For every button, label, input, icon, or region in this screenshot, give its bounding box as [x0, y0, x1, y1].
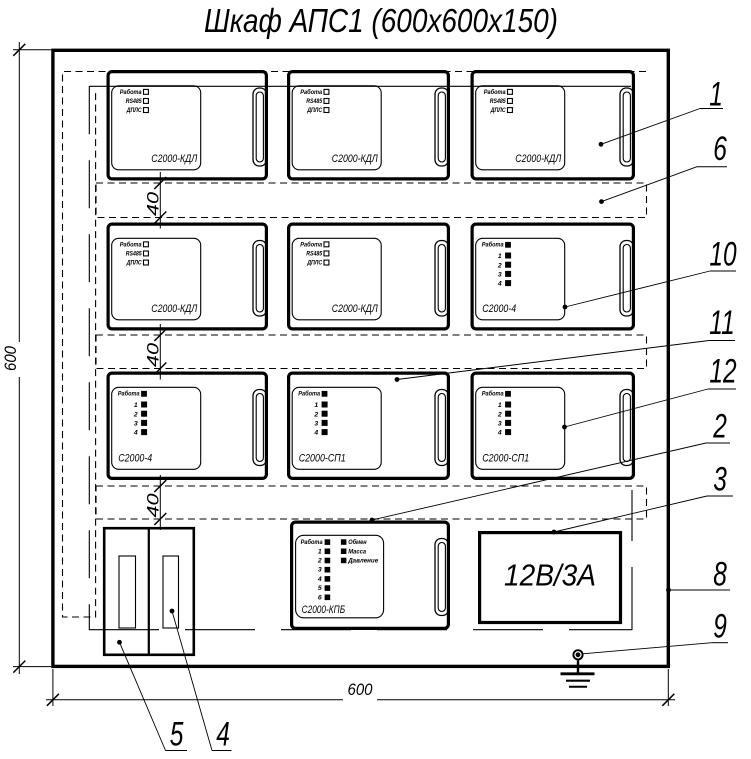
svg-text:40: 40	[144, 493, 163, 518]
svg-text:1: 1	[314, 402, 318, 409]
svg-text:5: 5	[170, 716, 184, 754]
svg-text:Шкаф АПС1 (600х600х150): Шкаф АПС1 (600х600х150)	[204, 2, 558, 39]
svg-text:С2000-4: С2000-4	[482, 303, 516, 315]
svg-text:Работа: Работа	[482, 390, 504, 398]
svg-text:4: 4	[313, 430, 318, 437]
svg-text:10: 10	[709, 236, 737, 274]
svg-text:RS485: RS485	[490, 98, 506, 105]
svg-text:5: 5	[318, 585, 322, 592]
svg-text:6: 6	[318, 594, 322, 601]
svg-text:9: 9	[713, 608, 727, 646]
svg-text:40: 40	[144, 191, 163, 216]
svg-text:RS485: RS485	[306, 98, 322, 105]
svg-text:1: 1	[134, 402, 138, 409]
svg-text:Работа: Работа	[118, 390, 140, 398]
svg-text:С2000-СП1: С2000-СП1	[299, 452, 346, 464]
svg-text:ДПЛС: ДПЛС	[306, 107, 322, 114]
svg-text:4: 4	[497, 281, 502, 288]
svg-text:С2000-КДЛ: С2000-КДЛ	[151, 303, 197, 315]
svg-text:Обмен: Обмен	[348, 538, 367, 546]
svg-text:ДПЛС: ДПЛС	[490, 107, 506, 114]
svg-text:4: 4	[133, 430, 138, 437]
svg-text:С2000-4: С2000-4	[118, 452, 152, 464]
svg-text:ДПЛС: ДПЛС	[126, 260, 142, 267]
svg-text:2: 2	[497, 262, 502, 269]
svg-text:2: 2	[497, 411, 502, 418]
svg-text:40: 40	[144, 342, 163, 367]
svg-text:RS485: RS485	[126, 98, 142, 105]
svg-text:С2000-КДЛ: С2000-КДЛ	[515, 153, 561, 165]
svg-text:Работа: Работа	[298, 390, 320, 398]
svg-text:Работа: Работа	[301, 538, 323, 546]
svg-text:Давление: Давление	[347, 558, 378, 565]
svg-text:Работа: Работа	[482, 241, 504, 249]
svg-text:3: 3	[498, 272, 502, 279]
svg-text:3: 3	[134, 421, 138, 428]
svg-text:С2000-КПБ: С2000-КПБ	[302, 604, 346, 616]
svg-text:RS485: RS485	[306, 251, 322, 258]
svg-text:3: 3	[314, 421, 318, 428]
svg-text:Работа: Работа	[120, 88, 142, 96]
svg-text:С2000-КДЛ: С2000-КДЛ	[151, 153, 197, 165]
svg-text:1: 1	[498, 402, 502, 409]
svg-text:11: 11	[709, 304, 734, 342]
svg-text:4: 4	[216, 716, 230, 754]
svg-text:12В/3А: 12В/3А	[504, 558, 596, 593]
svg-text:8: 8	[713, 556, 727, 594]
svg-text:3: 3	[498, 421, 502, 428]
svg-text:3: 3	[713, 461, 727, 499]
svg-text:3: 3	[318, 567, 322, 574]
svg-text:RS485: RS485	[126, 251, 142, 258]
svg-text:Работа: Работа	[484, 88, 506, 96]
svg-text:ДПЛС: ДПЛС	[306, 260, 322, 267]
svg-text:600: 600	[348, 681, 374, 699]
svg-text:ДПЛС: ДПЛС	[126, 107, 142, 114]
svg-text:Работа: Работа	[120, 241, 142, 249]
svg-text:1: 1	[498, 253, 502, 260]
svg-text:2: 2	[313, 411, 318, 418]
svg-text:2: 2	[133, 411, 138, 418]
svg-text:1: 1	[318, 548, 322, 555]
svg-text:2: 2	[317, 558, 322, 565]
svg-text:Работа: Работа	[300, 241, 322, 249]
svg-text:6: 6	[713, 130, 727, 168]
svg-text:4: 4	[497, 430, 502, 437]
svg-text:2: 2	[712, 408, 727, 446]
svg-text:С2000-КДЛ: С2000-КДЛ	[332, 303, 378, 315]
svg-text:600: 600	[2, 345, 20, 371]
svg-text:С2000-КДЛ: С2000-КДЛ	[332, 153, 378, 165]
svg-text:С2000-СП1: С2000-СП1	[482, 452, 529, 464]
svg-text:12: 12	[709, 353, 737, 391]
svg-text:1: 1	[709, 76, 723, 114]
svg-text:Масса: Масса	[348, 548, 366, 555]
svg-text:Работа: Работа	[300, 88, 322, 96]
svg-text:4: 4	[317, 576, 322, 583]
